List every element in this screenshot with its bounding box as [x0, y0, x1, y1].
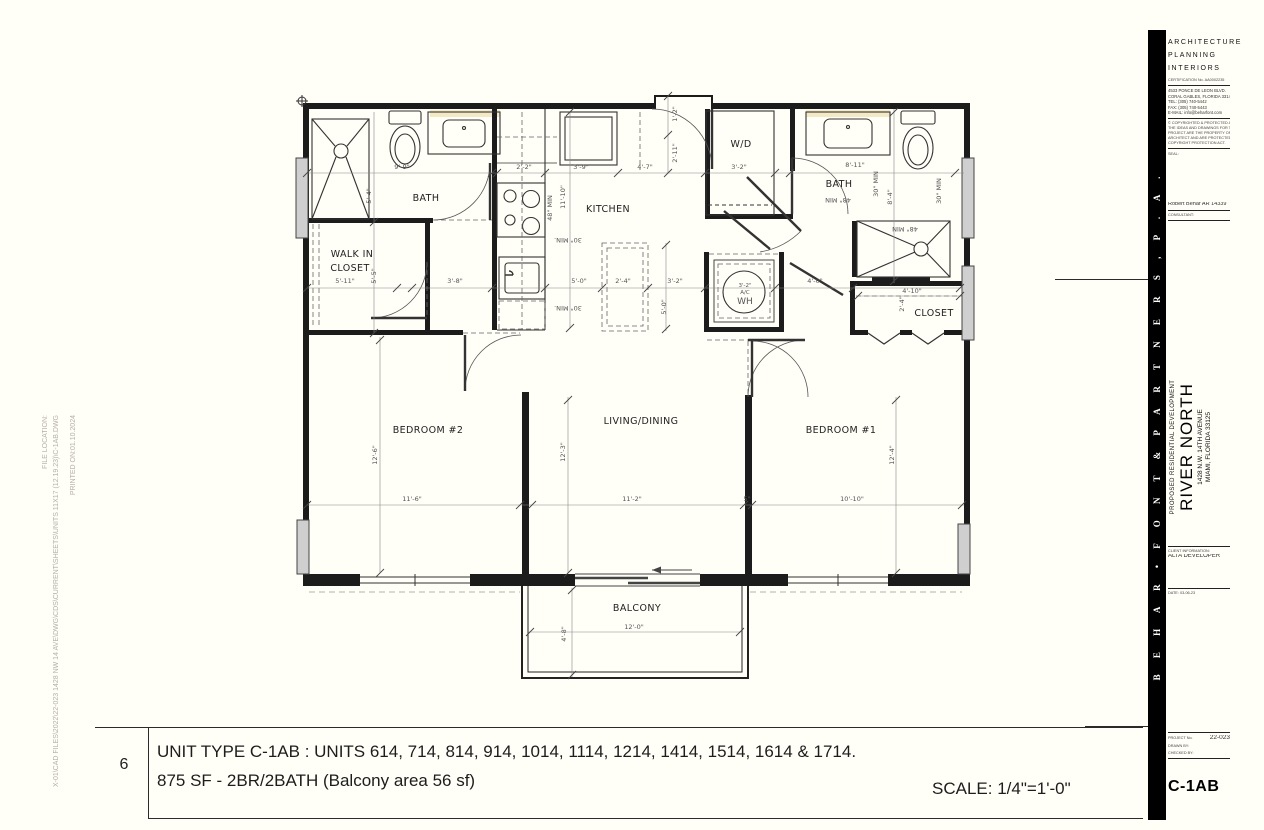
- dim-label: 4'-10": [902, 287, 922, 295]
- dim-label: 48" MIN: [825, 196, 851, 204]
- detail-number: 6: [103, 756, 145, 774]
- room-label: BEDROOM #1: [806, 425, 877, 436]
- sliding-door: [575, 574, 700, 586]
- dim-label: 30" MIN: [935, 178, 943, 204]
- date-block: DATE: 03-06-23: [1168, 586, 1230, 596]
- divider: [1168, 118, 1230, 119]
- titleblock-tick-1: [1055, 279, 1148, 280]
- client-info: CLIENT INFORMATION: ALTA DEVELOPER: [1168, 544, 1230, 560]
- dim-label: 2'-4": [615, 277, 630, 285]
- dim-label: 12'-0": [624, 623, 644, 631]
- dim-label: 48" MIN: [892, 225, 918, 233]
- titleblock-column: ARCHITECTURE PLANNING INTERIORS CERTIFIC…: [1168, 30, 1232, 820]
- seal-label: SEAL:: [1168, 152, 1230, 157]
- floor-plan: BATHWALK INCLOSETKITCHENW/DBATHCLOSETBED…: [0, 0, 1264, 830]
- stove: [497, 183, 545, 237]
- dim-label: 12'-4": [888, 445, 896, 465]
- project-no-value: 22-023: [1210, 735, 1230, 741]
- dim-label: 48" MIN: [546, 195, 554, 221]
- dim-label: 5'-0": [571, 277, 586, 285]
- dim-label: 11'-10": [559, 185, 567, 209]
- architect-of-record: Robert Behar AR 14339 CONSULTANT:: [1168, 202, 1230, 223]
- dimension-ticks: [303, 92, 966, 679]
- firm-address-1: 4533 PONCE DE LEON BLVD.: [1168, 88, 1230, 94]
- titleblock-tick-2: [1085, 726, 1148, 727]
- dim-label: 8'-4": [886, 189, 894, 204]
- walls: [303, 103, 970, 586]
- sheet-code-block: C-1AB: [1168, 778, 1230, 796]
- doors: [371, 109, 944, 397]
- date-value: DATE: 03-06-23: [1168, 591, 1230, 596]
- unit-title: UNIT TYPE C-1AB : UNITS 614, 714, 814, 9…: [157, 737, 856, 795]
- dim-label: 3'-9": [573, 163, 588, 171]
- titlebar-bottom-rule: [148, 818, 1143, 819]
- room-label: BEDROOM #2: [393, 425, 464, 436]
- divider: [1168, 148, 1230, 149]
- service-interiors: INTERIORS: [1168, 62, 1230, 75]
- dim-label: 3'-2": [667, 277, 682, 285]
- firm-email: E-MAIL: info@beharfont.com: [1168, 110, 1230, 116]
- divider: [1168, 588, 1230, 589]
- project-address-1: 1428 N.W. 14TH AVENUE: [1197, 332, 1205, 562]
- divider: [1168, 220, 1230, 221]
- dim-label: 2'-2": [516, 163, 531, 171]
- firm-name-vertical: B E H A R • F O N T & P A R T N E R S , …: [1148, 30, 1166, 820]
- service-architecture: ARCHITECTURE: [1168, 36, 1230, 49]
- dim-label: 9'-9": [394, 163, 409, 171]
- dim-label: 2'-11": [671, 143, 679, 163]
- wall-highlights: [430, 110, 890, 117]
- divider: [1168, 758, 1230, 759]
- unit-title-line1: UNIT TYPE C-1AB : UNITS 614, 714, 814, 9…: [157, 737, 856, 766]
- room-label: WALK IN: [331, 249, 374, 260]
- dim-label: WH: [737, 297, 753, 307]
- dim-label: 4'-8": [560, 626, 568, 641]
- dim-label: 4'-0": [807, 277, 822, 285]
- dim-label: 5'-0": [660, 299, 668, 314]
- dim-label: 30" MIN: [872, 171, 880, 197]
- dim-label: 5'-4": [365, 188, 373, 203]
- project-address-2: MIAMI, FLORIDA 33125: [1205, 332, 1213, 562]
- room-label: CLOSET: [330, 263, 369, 274]
- dim-label: 12'-3": [559, 442, 567, 462]
- windows: [360, 574, 888, 586]
- client-name: ALTA DEVELOPER: [1168, 554, 1230, 560]
- dim-label: 3'-2": [731, 163, 746, 171]
- titlebar-top-rule: [95, 727, 1143, 728]
- divider: [1168, 85, 1230, 86]
- entry-nook: [655, 96, 712, 109]
- file-path: X-01\CAD FILES\2022\22-023 1428 NW 14 AV…: [51, 415, 62, 809]
- file-location-note: FILE LOCATION: X-01\CAD FILES\2022\22-02…: [40, 415, 62, 809]
- dim-label: 5'-5": [370, 268, 378, 283]
- dim-label: 2'-4": [898, 296, 906, 311]
- vanity-1: [428, 112, 500, 154]
- scale-note: SCALE: 1/4"=1'-0": [932, 779, 1071, 799]
- divider: [1168, 210, 1230, 211]
- drawn-by-label: DRAWN BY:: [1168, 744, 1230, 749]
- printed-on-label: PRINTED ON:01.10.2024: [68, 415, 79, 503]
- room-label: W/D: [730, 139, 751, 150]
- dim-label: 11'-2": [622, 495, 642, 503]
- room-label: KITCHEN: [586, 204, 630, 215]
- project-number-block: PROJECT No. 22-023 DRAWN BY: CHECKED BY:: [1168, 730, 1230, 761]
- dim-label: 11'-6": [402, 495, 422, 503]
- room-label: LIVING/DINING: [604, 416, 679, 427]
- dimension-lines: [307, 96, 964, 677]
- toilet-2: [901, 111, 935, 169]
- disclaimer-5: COPYRIGHT PROTECTION ACT.: [1168, 141, 1230, 146]
- unit-title-line2: 875 SF - 2BR/2BATH (Balcony area 56 sf): [157, 766, 856, 795]
- printed-on-note: PRINTED ON:01.10.2024: [68, 415, 79, 503]
- checked-by-label: CHECKED BY:: [1168, 751, 1230, 756]
- titlebar-divider: [148, 727, 149, 819]
- dim-label: 3'-8": [447, 277, 462, 285]
- dim-label: 30" MIN.: [554, 304, 582, 312]
- room-label: CLOSET: [914, 308, 953, 319]
- dim-label: 8'-11": [845, 161, 865, 169]
- project-no-label: PROJECT No.: [1168, 736, 1193, 741]
- project-title-rotated: PROPOSED RESIDENTIAL DEVELOPMENT RIVER N…: [1170, 332, 1213, 562]
- certification-note: CERTIFICATION No. AA0002235: [1168, 78, 1230, 83]
- vanity-2: [806, 112, 890, 155]
- shower-1: [312, 119, 369, 219]
- toilet-1: [389, 111, 421, 168]
- dim-label: 4'-7": [637, 163, 652, 171]
- dim-label: 1'-2": [671, 106, 679, 121]
- architect-name: Robert Behar AR 14339: [1168, 202, 1230, 208]
- dim-label: 10'-10": [840, 495, 864, 503]
- room-label: BATH: [826, 179, 853, 190]
- dim-label: 30" MIN.: [554, 236, 582, 244]
- dim-label: 5'-11": [335, 277, 355, 285]
- dim-label: 12'-6": [371, 445, 379, 465]
- dim-label: A/C: [740, 290, 750, 296]
- dim-label: 5": [743, 495, 750, 503]
- dashed-lines: [313, 112, 962, 395]
- divider: [1168, 732, 1230, 733]
- room-label: BALCONY: [613, 603, 661, 614]
- plan-labels: BATHWALK INCLOSETKITCHENW/DBATHCLOSETBED…: [330, 106, 953, 641]
- refrigerator: [560, 112, 617, 165]
- room-label: BATH: [413, 193, 440, 204]
- sheet-code: C-1AB: [1168, 778, 1230, 796]
- firm-services: ARCHITECTURE PLANNING INTERIORS CERTIFIC…: [1168, 36, 1230, 157]
- divider: [1168, 546, 1230, 547]
- dim-label: 3'-2": [738, 283, 751, 289]
- service-planning: PLANNING: [1168, 49, 1230, 62]
- project-name: RIVER NORTH: [1177, 332, 1197, 562]
- file-location-label: FILE LOCATION:: [40, 415, 51, 809]
- slider-direction-arrow: [652, 567, 692, 574]
- consultant-label: CONSULTANT:: [1168, 213, 1230, 218]
- project-type: PROPOSED RESIDENTIAL DEVELOPMENT: [1170, 332, 1176, 562]
